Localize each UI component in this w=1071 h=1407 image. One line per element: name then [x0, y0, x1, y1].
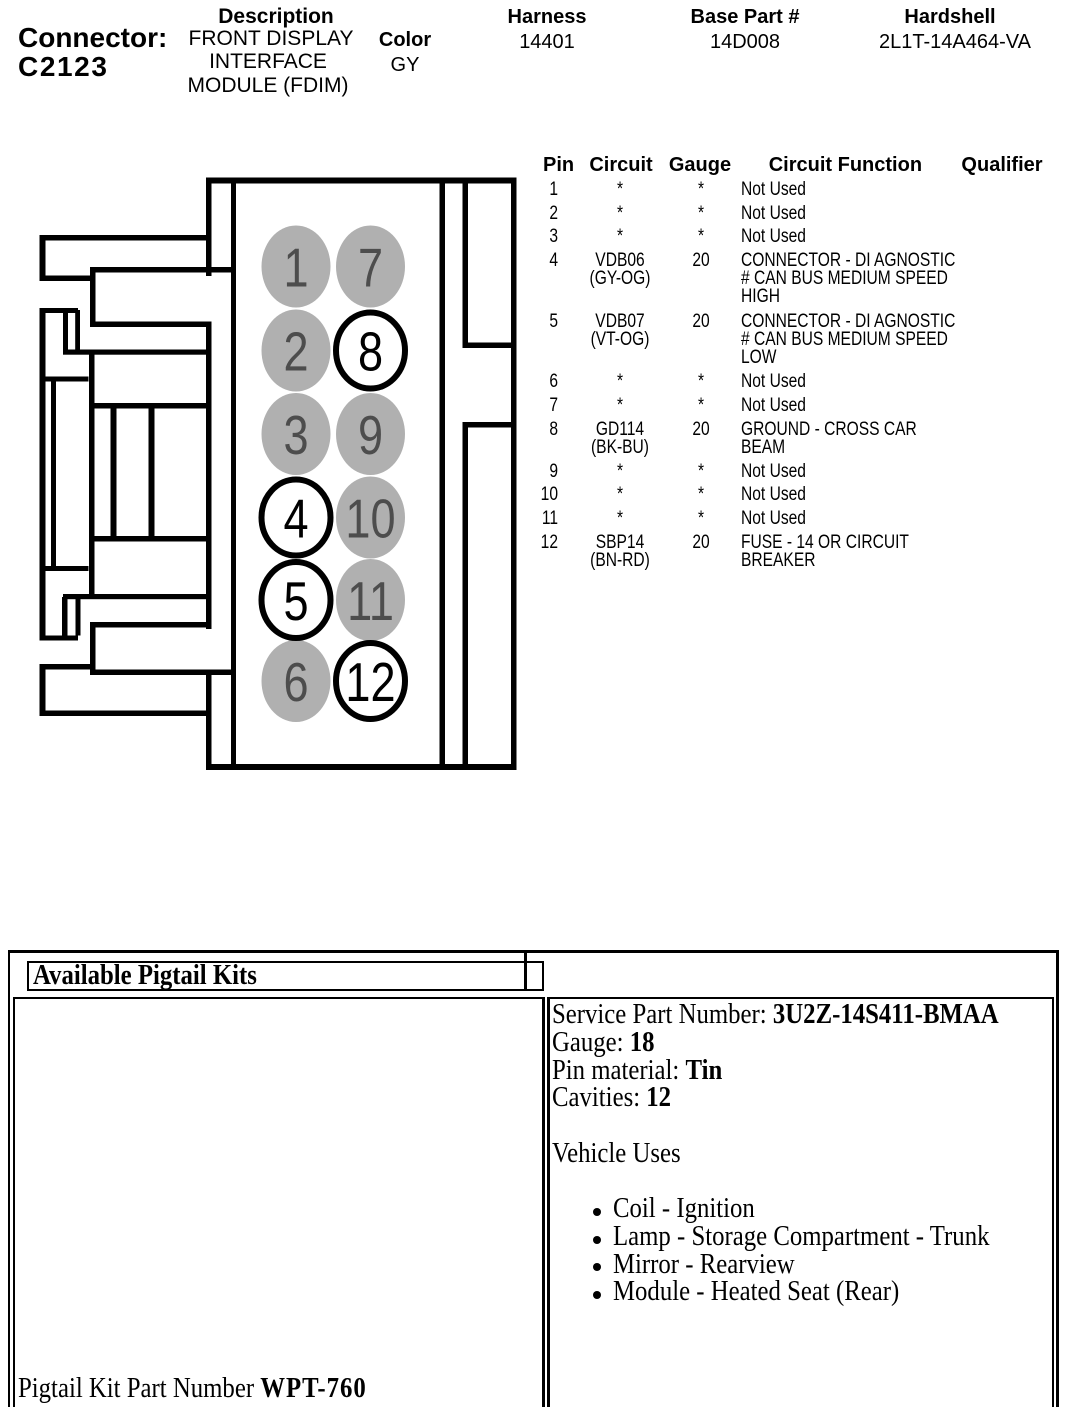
svg-text:5: 5: [283, 570, 308, 632]
svg-text:6: 6: [283, 651, 308, 713]
svg-text:10: 10: [345, 487, 395, 549]
svg-text:1: 1: [283, 236, 308, 298]
svg-text:9: 9: [358, 404, 383, 466]
svg-text:2: 2: [283, 320, 308, 382]
svg-text:11: 11: [347, 570, 394, 632]
svg-text:4: 4: [283, 487, 308, 549]
svg-text:12: 12: [345, 651, 395, 713]
svg-text:8: 8: [358, 320, 383, 382]
svg-text:3: 3: [283, 404, 308, 466]
svg-text:7: 7: [358, 236, 383, 298]
